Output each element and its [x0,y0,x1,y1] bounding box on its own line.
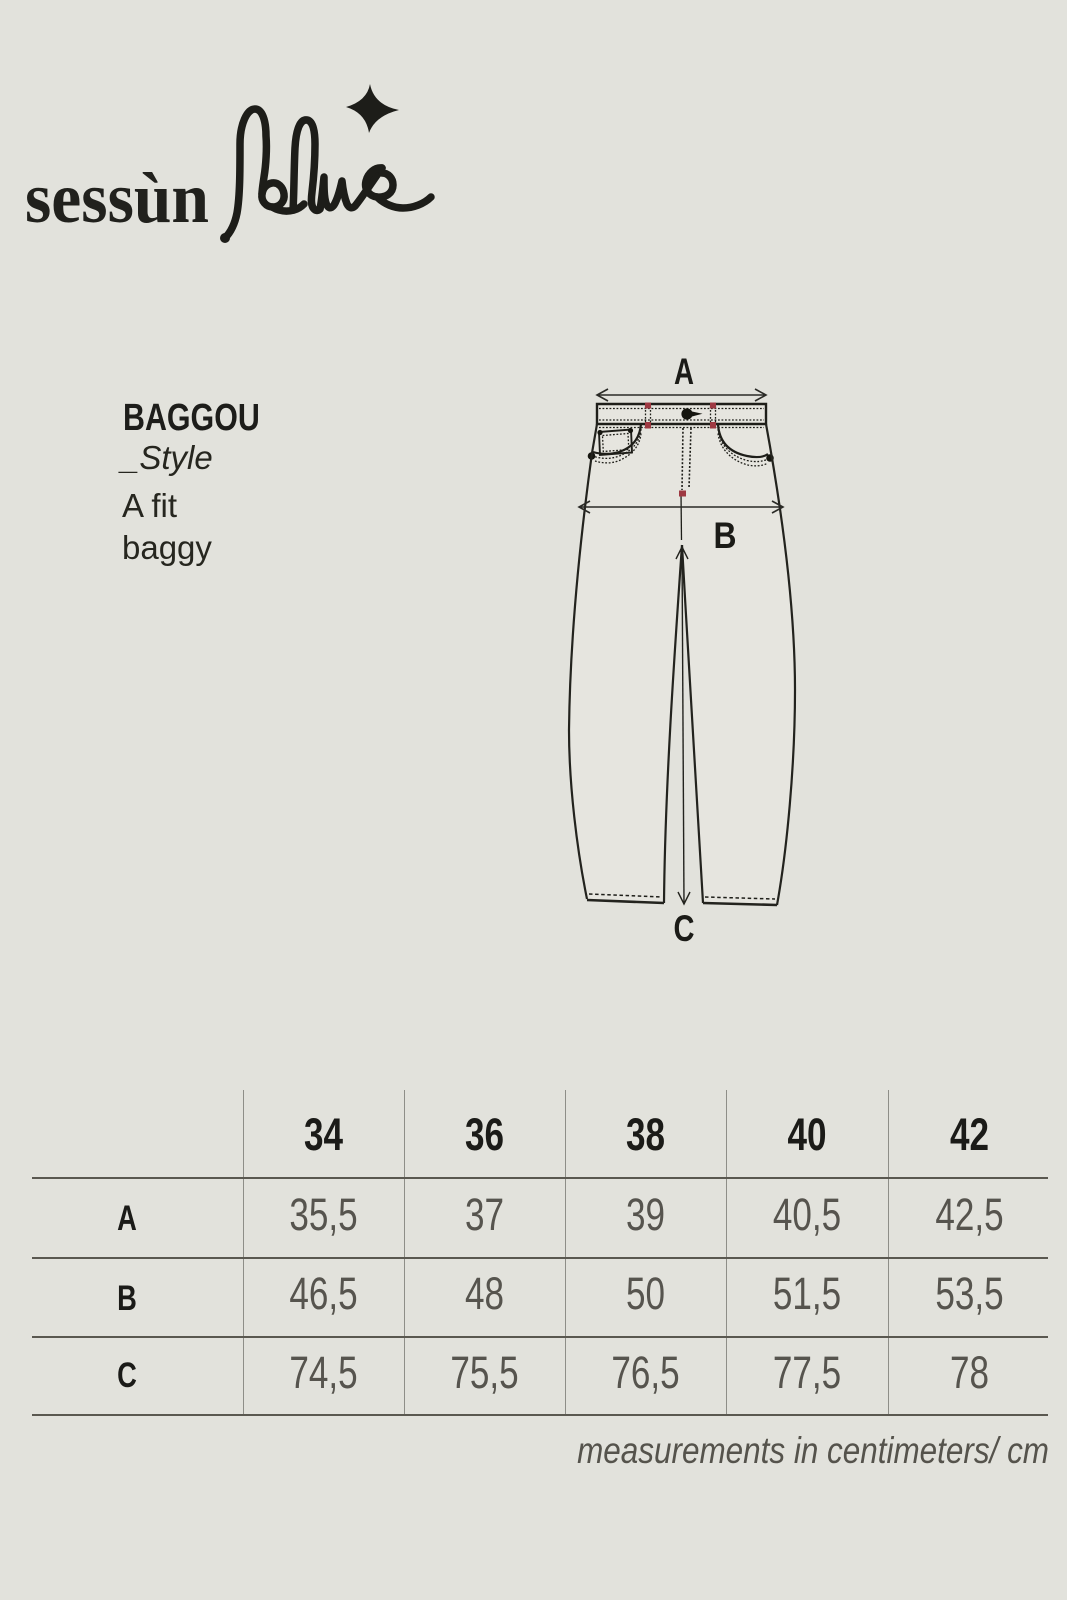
svg-text:A: A [674,351,694,392]
svg-text:sessùn: sessùn [25,158,209,238]
svg-text:B: B [714,515,737,556]
svg-text:C: C [674,908,695,949]
